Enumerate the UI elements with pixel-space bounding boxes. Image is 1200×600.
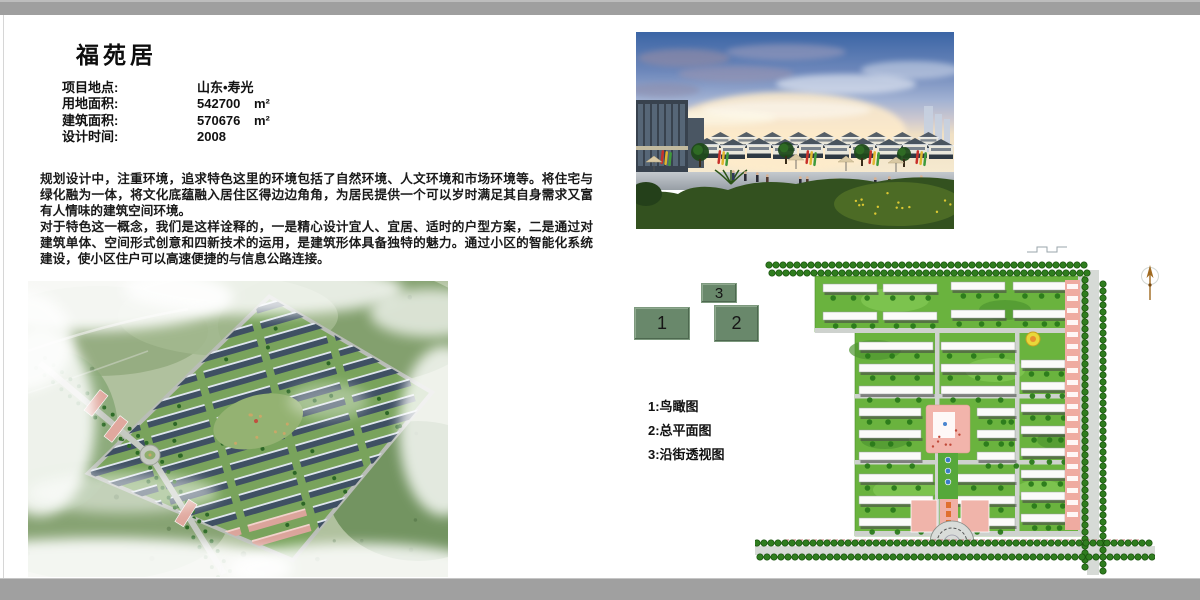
figure-marker-1: 1 bbox=[634, 307, 690, 340]
info-label: 建筑面积: bbox=[62, 113, 197, 129]
master-plan-art bbox=[755, 240, 1155, 575]
marker-number: 2 bbox=[731, 313, 741, 334]
marker-number: 1 bbox=[657, 313, 667, 334]
presentation-page: 福苑居 项目地点: 山东•寿光 用地面积: 542700 m² 建筑面积: 57… bbox=[0, 0, 1200, 600]
birdseye-rendering bbox=[28, 281, 448, 577]
marker-number: 3 bbox=[715, 285, 723, 302]
dimension-marks bbox=[1027, 247, 1067, 252]
legend-item-birdseye: 1:鸟瞰图 bbox=[648, 400, 725, 414]
info-value: 山东•寿光 bbox=[197, 80, 254, 96]
info-value: 570676 bbox=[197, 113, 254, 129]
info-row-land-area: 用地面积: 542700 m² bbox=[62, 96, 270, 112]
top-frame-band bbox=[0, 0, 1200, 15]
info-unit: m² bbox=[254, 113, 270, 129]
figure-marker-2: 2 bbox=[714, 305, 759, 342]
paragraph-2: 对于特色这一概念，我们是这样诠释的，一是精心设计宜人、宜居、适时的户型方案，二是… bbox=[40, 219, 593, 267]
street-art bbox=[636, 32, 954, 229]
paragraph-1: 规划设计中，注重环境，追求特色这里的环境包括了自然环境、人文环境和市场环境等。将… bbox=[40, 171, 593, 219]
info-label: 用地面积: bbox=[62, 96, 197, 112]
info-value: 542700 bbox=[197, 96, 254, 112]
figure-marker-3: 3 bbox=[701, 283, 737, 303]
figure-legend: 1:鸟瞰图 2:总平面图 3:沿街透视图 bbox=[648, 400, 725, 472]
info-value: 2008 bbox=[197, 129, 254, 145]
info-row-building-area: 建筑面积: 570676 m² bbox=[62, 113, 270, 129]
info-row-design-year: 设计时间: 2008 bbox=[62, 129, 270, 145]
legend-item-street: 3:沿街透视图 bbox=[648, 448, 725, 462]
master-plan-drawing bbox=[755, 240, 1155, 575]
info-label: 设计时间: bbox=[62, 129, 197, 145]
page-title: 福苑居 bbox=[76, 36, 157, 70]
description-text: 规划设计中，注重环境，追求特色这里的环境包括了自然环境、人文环境和市场环境等。将… bbox=[40, 171, 593, 267]
left-fold-line bbox=[3, 15, 4, 578]
info-row-location: 项目地点: 山东•寿光 bbox=[62, 80, 270, 96]
bottom-frame-band bbox=[0, 578, 1200, 600]
legend-item-masterplan: 2:总平面图 bbox=[648, 424, 725, 438]
project-info-table: 项目地点: 山东•寿光 用地面积: 542700 m² 建筑面积: 570676… bbox=[62, 80, 270, 145]
north-arrow-icon bbox=[1140, 264, 1160, 308]
info-label: 项目地点: bbox=[62, 80, 197, 96]
street-perspective-photo bbox=[636, 32, 954, 229]
birdseye-art bbox=[28, 281, 448, 577]
info-unit: m² bbox=[254, 96, 270, 112]
